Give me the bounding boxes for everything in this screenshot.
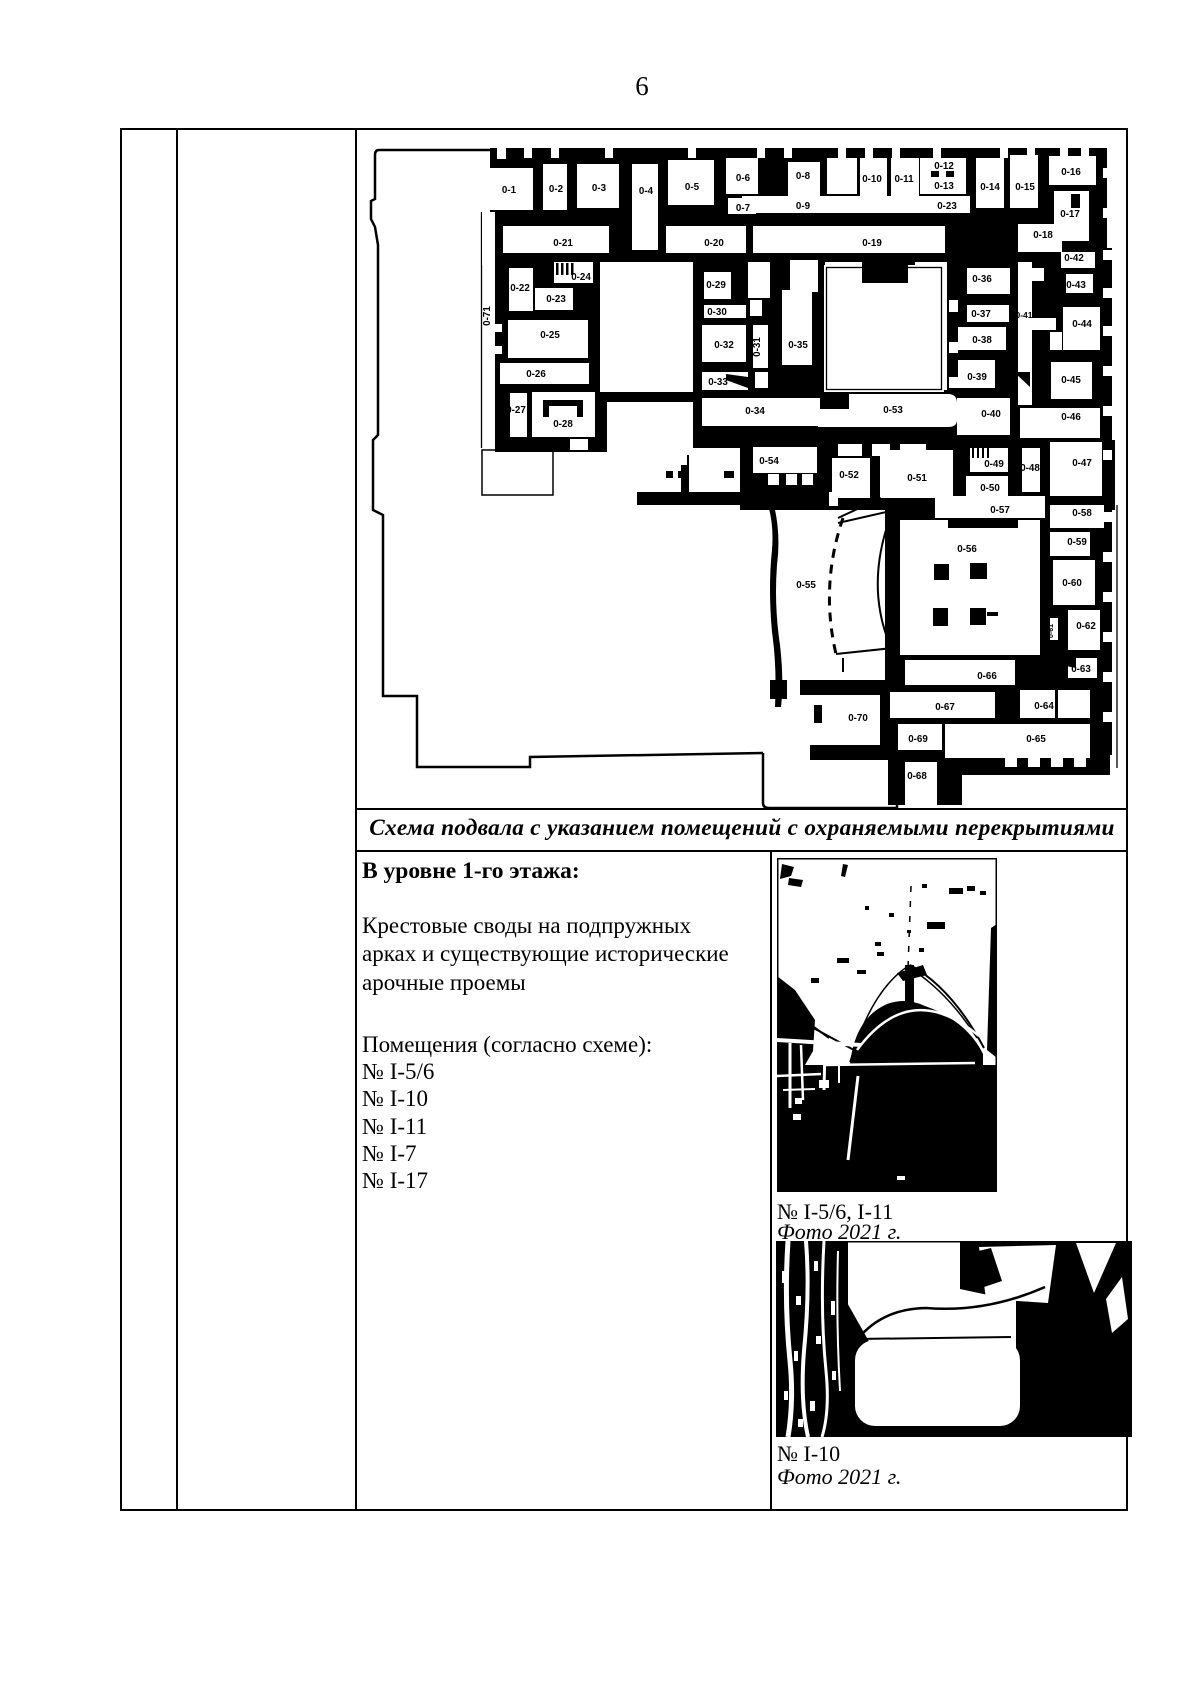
svg-text:0-9: 0-9 <box>796 201 811 212</box>
svg-text:0-21: 0-21 <box>553 238 573 249</box>
svg-text:0-30: 0-30 <box>707 307 727 318</box>
svg-text:0-57: 0-57 <box>990 505 1010 516</box>
svg-text:0-1: 0-1 <box>502 185 517 196</box>
svg-text:0-54: 0-54 <box>759 456 779 467</box>
svg-text:0-67: 0-67 <box>935 702 955 713</box>
svg-text:0-19: 0-19 <box>862 238 882 249</box>
svg-text:0-33: 0-33 <box>708 377 728 388</box>
svg-text:0-14: 0-14 <box>980 182 1000 193</box>
svg-text:0-22: 0-22 <box>510 283 530 294</box>
svg-text:0-2: 0-2 <box>549 184 564 195</box>
svg-text:0-41: 0-41 <box>1015 310 1032 320</box>
svg-text:0-15: 0-15 <box>1015 182 1035 193</box>
svg-text:0-17: 0-17 <box>1060 209 1080 220</box>
svg-text:0-50: 0-50 <box>980 483 1000 494</box>
svg-text:0-51: 0-51 <box>907 473 927 484</box>
svg-text:0-43: 0-43 <box>1066 280 1086 291</box>
svg-text:0-24: 0-24 <box>571 272 591 283</box>
svg-text:0-38: 0-38 <box>972 335 992 346</box>
svg-text:0-53: 0-53 <box>883 405 903 416</box>
svg-text:0-20: 0-20 <box>704 238 724 249</box>
svg-text:0-27: 0-27 <box>506 405 526 416</box>
svg-text:0-52: 0-52 <box>839 470 859 481</box>
svg-text:0-29: 0-29 <box>706 280 726 291</box>
svg-text:0-13: 0-13 <box>934 181 954 192</box>
svg-text:0-63: 0-63 <box>1071 664 1091 675</box>
svg-text:0-46: 0-46 <box>1061 412 1081 423</box>
svg-text:0-23: 0-23 <box>546 294 566 305</box>
svg-text:0-45: 0-45 <box>1061 375 1081 386</box>
svg-text:0-10: 0-10 <box>862 174 882 185</box>
svg-text:0-61: 0-61 <box>1048 624 1055 638</box>
svg-text:0-7: 0-7 <box>736 203 751 214</box>
svg-text:0-49: 0-49 <box>984 459 1004 470</box>
svg-text:0-31: 0-31 <box>752 337 763 357</box>
svg-text:0-16: 0-16 <box>1061 167 1081 178</box>
svg-text:0-70: 0-70 <box>848 713 868 724</box>
svg-text:0-26: 0-26 <box>526 369 546 380</box>
svg-text:0-11: 0-11 <box>894 174 914 185</box>
svg-text:0-8: 0-8 <box>796 171 811 182</box>
svg-text:0-56: 0-56 <box>957 544 977 555</box>
svg-text:0-62: 0-62 <box>1076 621 1096 632</box>
svg-text:0-4: 0-4 <box>639 186 654 197</box>
svg-text:0-44: 0-44 <box>1072 319 1092 330</box>
svg-text:0-65: 0-65 <box>1026 734 1046 745</box>
svg-text:0-6: 0-6 <box>736 173 751 184</box>
svg-text:0-18: 0-18 <box>1033 230 1053 241</box>
svg-text:0-68: 0-68 <box>907 771 927 782</box>
svg-text:0-48: 0-48 <box>1020 463 1040 474</box>
svg-text:0-32: 0-32 <box>714 340 734 351</box>
svg-text:0-42: 0-42 <box>1064 253 1084 264</box>
svg-text:0-59: 0-59 <box>1067 537 1087 548</box>
svg-text:0-3: 0-3 <box>592 183 607 194</box>
svg-text:0-40: 0-40 <box>981 409 1001 420</box>
svg-text:0-58: 0-58 <box>1072 508 1092 519</box>
svg-text:0-35: 0-35 <box>788 340 808 351</box>
svg-text:0-69: 0-69 <box>908 734 928 745</box>
svg-text:0-34: 0-34 <box>745 406 765 417</box>
svg-text:0-37: 0-37 <box>971 309 991 320</box>
svg-text:0-39: 0-39 <box>967 372 987 383</box>
svg-text:0-28: 0-28 <box>553 419 573 430</box>
svg-text:0-12: 0-12 <box>934 161 954 172</box>
svg-text:0-60: 0-60 <box>1062 578 1082 589</box>
svg-text:0-47: 0-47 <box>1072 458 1092 469</box>
svg-text:0-64: 0-64 <box>1034 701 1054 712</box>
svg-text:0-36: 0-36 <box>972 274 992 285</box>
svg-text:0-66: 0-66 <box>977 671 997 682</box>
svg-text:0-55: 0-55 <box>796 580 816 591</box>
svg-text:0-25: 0-25 <box>540 330 560 341</box>
svg-text:0-5: 0-5 <box>685 182 700 193</box>
svg-text:0-23: 0-23 <box>937 201 957 212</box>
svg-text:0-71: 0-71 <box>482 306 493 326</box>
